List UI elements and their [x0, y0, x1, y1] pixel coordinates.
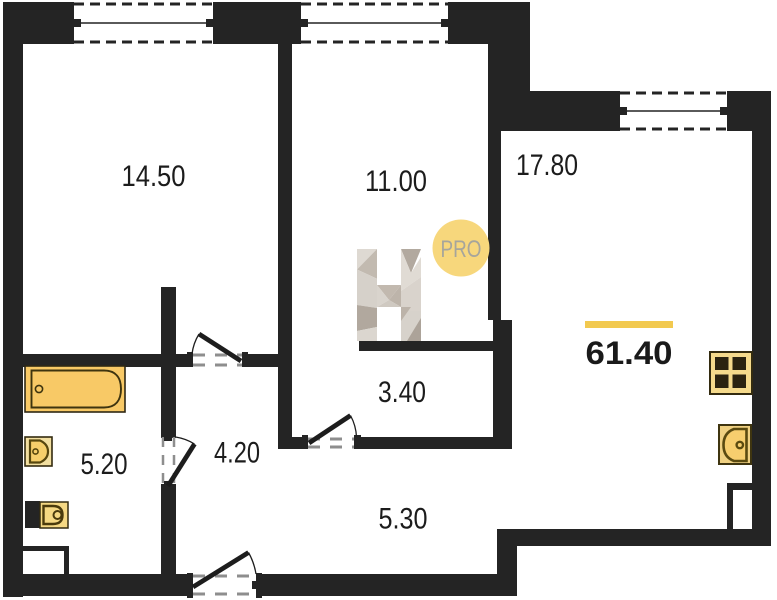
svg-text:14.50: 14.50 — [122, 160, 186, 193]
svg-text:PRO: PRO — [441, 236, 482, 263]
svg-text:3.40: 3.40 — [378, 376, 426, 409]
svg-text:17.80: 17.80 — [516, 149, 578, 182]
svg-text:5.30: 5.30 — [379, 503, 428, 536]
svg-text:5.20: 5.20 — [81, 448, 128, 481]
svg-text:61.40: 61.40 — [586, 335, 673, 371]
svg-text:4.20: 4.20 — [214, 437, 260, 470]
svg-text:11.00: 11.00 — [365, 165, 427, 198]
